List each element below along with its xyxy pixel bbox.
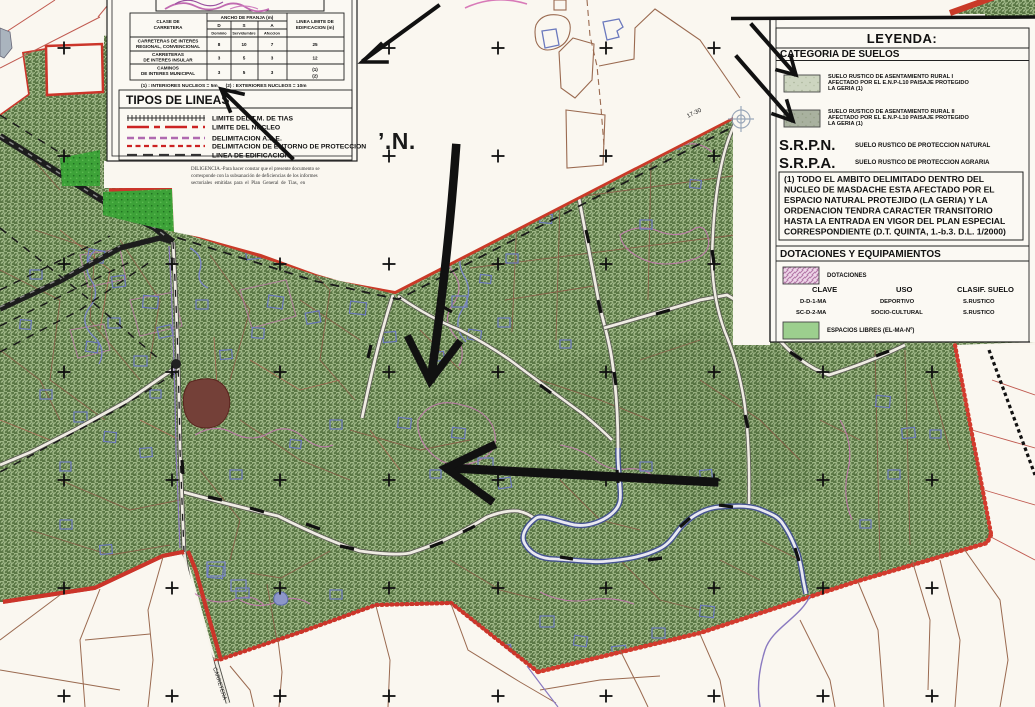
svg-text:S.R.P.A.: S.R.P.A. <box>779 155 835 172</box>
svg-text:DELIMITACION DE ENTORNO DE PRO: DELIMITACION DE ENTORNO DE PROTECCION <box>212 144 366 151</box>
svg-text:CATEGORIA DE SUELOS: CATEGORIA DE SUELOS <box>780 49 900 60</box>
svg-text:sectoriales emitidas para e: sectoriales emitidas para el Plan Genera… <box>191 181 306 186</box>
svg-text:S.RUSTICO: S.RUSTICO <box>963 299 995 305</box>
svg-text:Servidumbre: Servidumbre <box>232 32 255 36</box>
svg-text:LINEA DE EDIFICACION: LINEA DE EDIFICACION <box>212 153 290 160</box>
svg-text:ORDENACION TENDRA CARACTER TRA: ORDENACION TENDRA CARACTER TRANSITORIO <box>784 206 993 216</box>
svg-text:CARRETERA: CARRETERA <box>154 25 184 30</box>
svg-text:SUELO RUSTICO DE PROTECCION NA: SUELO RUSTICO DE PROTECCION NATURAL <box>855 142 991 149</box>
svg-text:(1) TODO EL AMBITO DELIMITADO: (1) TODO EL AMBITO DELIMITADO DENTRO DEL <box>784 174 984 184</box>
svg-text:3: 3 <box>271 56 274 61</box>
svg-text:CLASIF. SUELO: CLASIF. SUELO <box>957 285 1014 294</box>
svg-text:3: 3 <box>218 70 221 75</box>
svg-text:(2): (2) <box>312 74 318 79</box>
svg-text:7: 7 <box>271 42 274 47</box>
svg-text:USO: USO <box>896 285 913 294</box>
svg-text:3: 3 <box>271 70 274 75</box>
svg-text:S: S <box>242 23 245 28</box>
svg-text:SC-D-2-MA: SC-D-2-MA <box>796 310 827 316</box>
svg-text:CARRETERAS: CARRETERAS <box>152 52 184 57</box>
svg-text:CLASE DE: CLASE DE <box>156 19 179 24</box>
svg-text:12: 12 <box>312 56 318 61</box>
svg-text:corresponde con la subsanación: corresponde con la subsanación de defici… <box>191 174 318 179</box>
svg-text:S.R.P.N.: S.R.P.N. <box>779 137 835 154</box>
svg-text:S.RUSTICO: S.RUSTICO <box>963 310 995 316</box>
svg-text:DOTACIONES: DOTACIONES <box>827 273 867 279</box>
svg-text:DOTACIONES Y EQUIPAMIENTOS: DOTACIONES Y EQUIPAMIENTOS <box>780 249 941 260</box>
svg-text:CARRETERAS DE INTERES: CARRETERAS DE INTERES <box>138 39 199 44</box>
svg-text:DILIGENCIA.-Para hacer constar: DILIGENCIA.-Para hacer constar que el pr… <box>191 167 320 172</box>
svg-text:(1): (1) <box>312 67 318 72</box>
svg-text:3: 3 <box>218 56 221 61</box>
svg-text:10: 10 <box>241 42 247 47</box>
svg-text:DEPORTIVO: DEPORTIVO <box>880 299 915 305</box>
svg-text:LA GERIA (1): LA GERIA (1) <box>828 121 863 127</box>
svg-text:SUELO RUSTICO DE PROTECCION AG: SUELO RUSTICO DE PROTECCION AGRARIA <box>855 159 990 166</box>
svg-text:8: 8 <box>218 42 221 47</box>
svg-text:NUCLEO DE MASDACHE ESTA AFECTA: NUCLEO DE MASDACHE ESTA AFECTADO POR EL <box>784 185 995 195</box>
svg-text:ESPACIO NATURAL PROTEJIDO (LA: ESPACIO NATURAL PROTEJIDO (LA GERIA) Y L… <box>784 195 988 205</box>
svg-text:ESPACIOS LIBRES (EL-MA-Nº): ESPACIOS LIBRES (EL-MA-Nº) <box>827 328 914 334</box>
svg-text:5: 5 <box>243 56 246 61</box>
svg-text:D-D-1-MA: D-D-1-MA <box>800 299 827 305</box>
svg-text:CAMINOS: CAMINOS <box>157 66 179 71</box>
svg-text:DE INTERES INSULAR: DE INTERES INSULAR <box>143 58 193 63</box>
svg-text:LA GERIA (1): LA GERIA (1) <box>828 86 863 92</box>
svg-text:CLAVE: CLAVE <box>812 285 837 294</box>
svg-text:ANCHO DE FRANJA (m): ANCHO DE FRANJA (m) <box>221 15 274 20</box>
svg-text:25: 25 <box>312 42 318 47</box>
svg-text:DE INTERES MUNICIPAL: DE INTERES MUNICIPAL <box>141 71 195 76</box>
svg-text:HASTA LA ENTRADA EN VIGOR DEL: HASTA LA ENTRADA EN VIGOR DEL PLAN ESPEC… <box>784 216 1005 226</box>
svg-text:CORRESPONDIENTE (D.T. QUINTA,: CORRESPONDIENTE (D.T. QUINTA, 1.-b.3. D.… <box>784 227 1006 237</box>
svg-text:EDIFICACION (m): EDIFICACION (m) <box>296 25 335 30</box>
svg-text:TIPOS DE LINEAS: TIPOS DE LINEAS <box>126 93 229 107</box>
svg-text:SOCIO-CULTURAL: SOCIO-CULTURAL <box>871 310 923 316</box>
svg-text:LIMITE DEL NUCLEO: LIMITE DEL NUCLEO <box>212 125 280 132</box>
svg-text:REGIONAL, CONVENCIONAL: REGIONAL, CONVENCIONAL <box>136 44 200 49</box>
svg-text:LEYENDA:: LEYENDA: <box>867 31 937 46</box>
svg-text:Afeccion: Afeccion <box>264 32 281 36</box>
svg-text:LINEA LIMITE DE: LINEA LIMITE DE <box>296 19 334 24</box>
svg-text:’.N.: ’.N. <box>378 128 416 154</box>
svg-text:Dominio: Dominio <box>211 32 227 36</box>
svg-text:5: 5 <box>243 70 246 75</box>
